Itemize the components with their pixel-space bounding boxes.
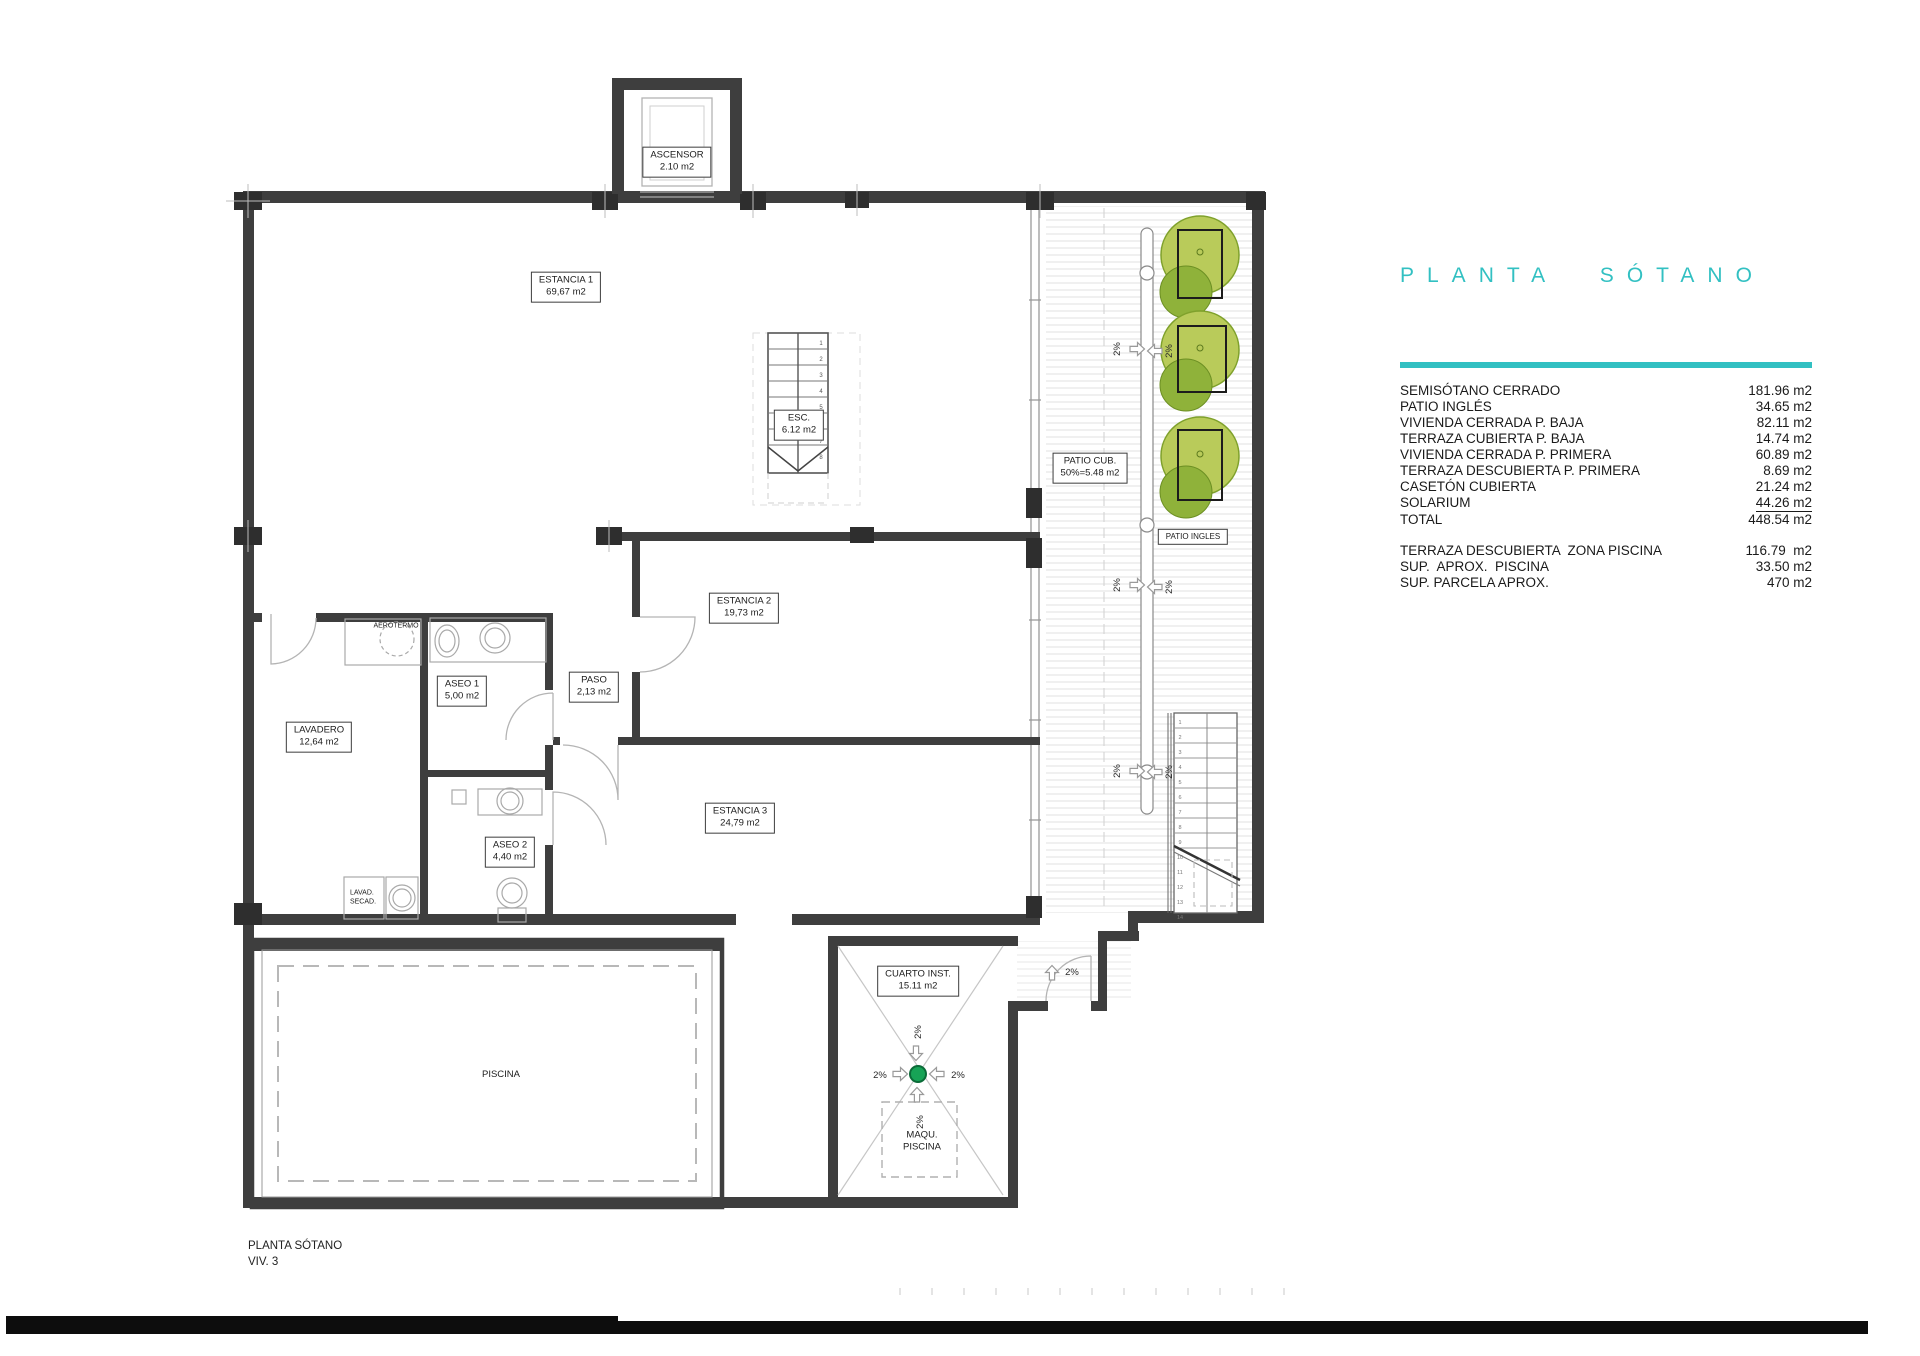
legend-row: VIVIENDA CERRADA P. BAJA 82.11 m2	[1400, 415, 1812, 431]
label-maqu-piscina: MAQU. PISCINA	[903, 1130, 941, 1155]
room-name: PASO	[577, 675, 611, 687]
legend-label: TOTAL	[1400, 512, 1442, 528]
patio-step-number: 7	[1178, 810, 1181, 816]
legend: SEMISÓTANO CERRADO 181.96 m2 PATIO INGLÉ…	[1400, 383, 1812, 591]
patio-step-number: 10	[1177, 855, 1183, 861]
patio-step-number: 11	[1177, 870, 1183, 876]
legend-value: 60.89 m2	[1756, 447, 1812, 463]
slope-label: 2%	[873, 1070, 887, 1081]
sheet-caption-title: PLANTA SÓTANO	[248, 1238, 342, 1254]
legend-value: 21.24 m2	[1756, 479, 1812, 495]
room-area: 5,00 m2	[445, 691, 479, 703]
label-piscina: PISCINA	[482, 1069, 520, 1081]
slope-label: 2%	[913, 1025, 924, 1039]
room-area: 15.11 m2	[885, 981, 951, 993]
sheet-caption: PLANTA SÓTANO VIV. 3	[248, 1238, 342, 1270]
legend-rule	[1400, 362, 1812, 368]
room-name: LAVADERO	[294, 725, 344, 737]
patio-step-number: 5	[1178, 780, 1181, 786]
legend-label: CASETÓN CUBIERTA	[1400, 479, 1536, 495]
room-area: 69,67 m2	[539, 287, 593, 299]
stairs-patio: 1 2 3 4 5 6 7 8 9 10 11 12 13 14	[1168, 713, 1240, 921]
patio-step-number: 8	[1178, 825, 1181, 831]
slope-label: 2%	[1164, 580, 1175, 594]
legend-label: TERRAZA DESCUBIERTA ZONA PISCINA	[1400, 543, 1662, 559]
room-name: ESTANCIA 2	[717, 596, 771, 608]
slope-label: 2%	[1112, 764, 1123, 778]
room-area: 2.10 m2	[650, 162, 703, 174]
label-lavad-secad: LAVAD. SECAD.	[350, 889, 376, 908]
legend-value: 82.11 m2	[1757, 415, 1812, 431]
slope-label: 2%	[1112, 342, 1123, 356]
patio-step-number: 4	[1178, 765, 1181, 771]
room-area: 6.12 m2	[782, 425, 816, 437]
room-name: ESTANCIA 3	[713, 806, 767, 818]
room-name: PATIO INGLES	[1166, 532, 1220, 542]
slope-label: 2%	[1065, 967, 1079, 978]
legend-label: PATIO INGLÉS	[1400, 399, 1492, 415]
legend-label: SUP. APROX. PISCINA	[1400, 559, 1549, 575]
legend-value: 470 m2	[1767, 575, 1812, 591]
label-estancia-2: ESTANCIA 2 19,73 m2	[709, 593, 779, 624]
patio-step-number: 9	[1178, 840, 1181, 846]
label-aseo-1: ASEO 1 5,00 m2	[437, 676, 487, 707]
legend-label: SOLARIUM	[1400, 495, 1471, 512]
legend-value: 8.69 m2	[1763, 463, 1812, 479]
slope-label: 2%	[1164, 344, 1175, 358]
room-name: PISCINA	[903, 1142, 941, 1154]
room-area: 24,79 m2	[713, 818, 767, 830]
legend-row: PATIO INGLÉS 34.65 m2	[1400, 399, 1812, 415]
room-name: PATIO CUB.	[1061, 456, 1120, 468]
legend-row: TERRAZA CUBIERTA P. BAJA 14.74 m2	[1400, 431, 1812, 447]
patio-step-number: 14	[1177, 915, 1183, 921]
legend-label: SEMISÓTANO CERRADO	[1400, 383, 1560, 399]
legend-row: SUP. PARCELA APROX. 470 m2	[1400, 575, 1812, 591]
legend-value: 33.50 m2	[1756, 559, 1812, 575]
label-aseo-2: ASEO 2 4,40 m2	[485, 837, 535, 868]
patio-step-number: 6	[1178, 795, 1181, 801]
room-name: CUARTO INST.	[885, 969, 951, 981]
legend-row-total: TOTAL 448.54 m2	[1400, 512, 1812, 528]
room-name: ASEO 2	[493, 840, 527, 852]
label-paso: PASO 2,13 m2	[569, 672, 619, 703]
page-title: PLANTA SÓTANO	[1400, 264, 1765, 288]
room-area: 12,64 m2	[294, 737, 344, 749]
legend-value: 34.65 m2	[1756, 399, 1812, 415]
legend-label: VIVIENDA CERRADA P. PRIMERA	[1400, 447, 1611, 463]
legend-value: 14.74 m2	[1756, 431, 1812, 447]
label-esc: ESC. 6.12 m2	[774, 410, 824, 441]
room-area: 19,73 m2	[717, 608, 771, 620]
room-name: ESTANCIA 1	[539, 275, 593, 287]
bottom-bar	[6, 1316, 1868, 1334]
legend-value: 116.79 m2	[1745, 543, 1812, 559]
slope-label: 2%	[1164, 765, 1175, 779]
legend-row: TERRAZA DESCUBIERTA ZONA PISCINA 116.79 …	[1400, 543, 1812, 559]
label-ascensor: ASCENSOR 2.10 m2	[642, 147, 711, 178]
elevator	[612, 78, 742, 197]
room-area: 2,13 m2	[577, 687, 611, 699]
legend-value: 44.26 m2	[1756, 495, 1812, 512]
label-estancia-3: ESTANCIA 3 24,79 m2	[705, 803, 775, 834]
room-name: PISCINA	[482, 1069, 520, 1081]
room-name: ASCENSOR	[650, 150, 703, 162]
patio-step-number: 2	[1178, 735, 1181, 741]
patio-step-number: 13	[1177, 900, 1183, 906]
label-lavadero: LAVADERO 12,64 m2	[286, 722, 352, 753]
legend-row: VIVIENDA CERRADA P. PRIMERA 60.89 m2	[1400, 447, 1812, 463]
legend-value: 448.54 m2	[1748, 512, 1812, 528]
legend-label: VIVIENDA CERRADA P. BAJA	[1400, 415, 1584, 431]
drain-channel	[1140, 228, 1154, 814]
label-aerotermo: AEROTERMO	[373, 621, 418, 630]
room-name: ASEO 1	[445, 679, 479, 691]
trees	[1160, 216, 1239, 518]
room-name: MAQU.	[903, 1130, 941, 1142]
patio-step-number: 3	[1178, 750, 1181, 756]
slope-label: 2%	[1112, 578, 1123, 592]
label-patio-ingles: PATIO INGLES	[1158, 529, 1228, 545]
legend-row: TERRAZA DESCUBIERTA P. PRIMERA 8.69 m2	[1400, 463, 1812, 479]
patio-step-number: 1	[1178, 720, 1181, 726]
scale-ticks	[900, 1288, 1284, 1295]
room-name: SECAD.	[350, 898, 376, 907]
legend-row: SUP. APROX. PISCINA 33.50 m2	[1400, 559, 1812, 575]
legend-value: 181.96 m2	[1748, 383, 1812, 399]
label-patio-cub: PATIO CUB. 50%=5.48 m2	[1053, 453, 1128, 484]
room-name: AEROTERMO	[373, 621, 418, 630]
slope-label: 2%	[915, 1115, 926, 1129]
legend-row: SEMISÓTANO CERRADO 181.96 m2	[1400, 383, 1812, 399]
sheet-caption-unit: VIV. 3	[248, 1254, 342, 1270]
floor-drain	[910, 1066, 926, 1082]
legend-row: CASETÓN CUBIERTA 21.24 m2	[1400, 479, 1812, 495]
slope-label: 2%	[951, 1070, 965, 1081]
legend-row: SOLARIUM 44.26 m2	[1400, 495, 1812, 512]
label-estancia-1: ESTANCIA 1 69,67 m2	[531, 272, 601, 303]
floorplan-sheet: 1 2 3 4 5 6 7 8	[0, 0, 1920, 1356]
label-cuarto-inst: CUARTO INST. 15.11 m2	[877, 966, 959, 997]
legend-label: SUP. PARCELA APROX.	[1400, 575, 1549, 591]
patio-step-number: 12	[1177, 885, 1183, 891]
room-area: 50%=5.48 m2	[1061, 468, 1120, 480]
legend-label: TERRAZA DESCUBIERTA P. PRIMERA	[1400, 463, 1640, 479]
room-name: ESC.	[782, 413, 816, 425]
floorplan-drawing: 1 2 3 4 5 6 7 8	[0, 0, 1920, 1356]
room-area: 4,40 m2	[493, 852, 527, 864]
legend-label: TERRAZA CUBIERTA P. BAJA	[1400, 431, 1585, 447]
room-name: LAVAD.	[350, 889, 376, 898]
